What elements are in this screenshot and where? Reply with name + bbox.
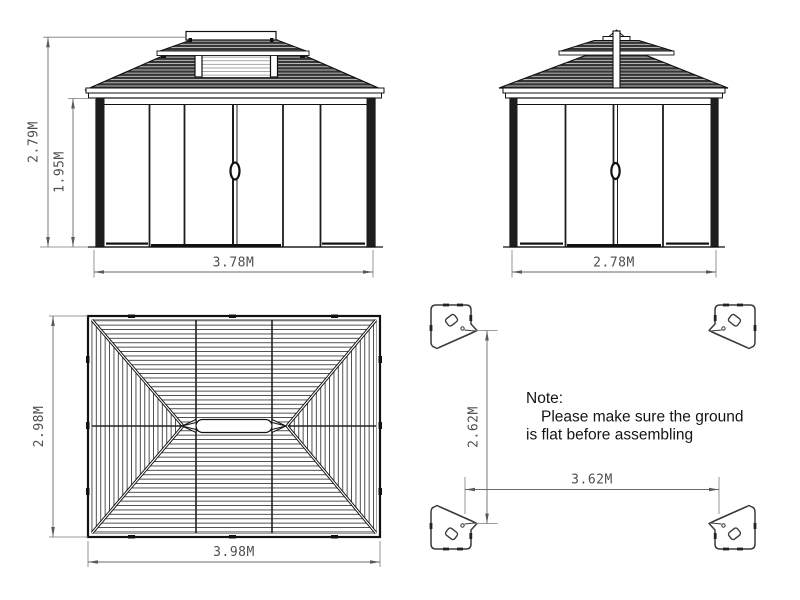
front-cupola-cap xyxy=(186,32,276,41)
plan-ridge-beam xyxy=(196,420,272,433)
front-post-right xyxy=(367,98,376,247)
side-elevation-view: 2.78M xyxy=(499,30,728,278)
roof-plan-view: 2.98M 3.98M xyxy=(32,315,382,568)
front-cupola-foot-right xyxy=(300,56,305,59)
front-width-label: 3.78M xyxy=(213,256,255,271)
anchor-plate-top-left xyxy=(430,304,477,349)
side-eave-fascia xyxy=(503,88,725,93)
anchor-plate-bottom-right xyxy=(709,506,756,551)
side-post-right xyxy=(711,98,719,247)
front-cupola-fascia xyxy=(157,51,309,56)
front-wall-height-label: 1.95M xyxy=(53,151,68,193)
drawing-canvas: 2.79M 1.95M 3.78M xyxy=(0,0,800,600)
front-eave-cornice xyxy=(89,93,382,98)
front-cap-post-left xyxy=(189,38,193,42)
plan-width-label: 3.98M xyxy=(213,545,255,560)
plan-depth-label: 2.98M xyxy=(32,406,47,448)
note-line-2: is flat before assembling xyxy=(526,427,693,444)
front-elevation-view: 2.79M 1.95M 3.78M xyxy=(27,32,385,278)
front-door-handle xyxy=(231,163,240,180)
note-block: Note: Please make sure the ground is fla… xyxy=(526,390,743,444)
front-cupola-foot-left xyxy=(161,56,166,59)
front-total-height-label: 2.79M xyxy=(27,121,42,163)
side-width-label: 2.78M xyxy=(593,256,635,271)
footprint-depth-label: 2.62M xyxy=(467,406,482,448)
gazebo-dimension-drawing: 2.79M 1.95M 3.78M xyxy=(0,0,800,600)
note-heading: Note: xyxy=(526,390,563,407)
note-line-1: Please make sure the ground xyxy=(541,409,743,426)
footprint-width-label: 3.62M xyxy=(571,473,613,488)
anchor-footprint-view: 2.62M 3.62M Note: Please make sure the g… xyxy=(430,304,757,551)
anchor-plate-bottom-left xyxy=(430,506,477,551)
side-center-post xyxy=(613,31,620,88)
side-door-handle xyxy=(611,163,619,179)
front-post-left xyxy=(96,98,105,247)
front-cap-post-right xyxy=(270,38,274,42)
front-cupola-roof xyxy=(160,40,306,51)
anchor-plate-top-right xyxy=(709,304,756,349)
side-eave-cornice xyxy=(506,93,723,98)
front-eave-fascia xyxy=(86,88,384,93)
side-post-left xyxy=(510,98,518,247)
